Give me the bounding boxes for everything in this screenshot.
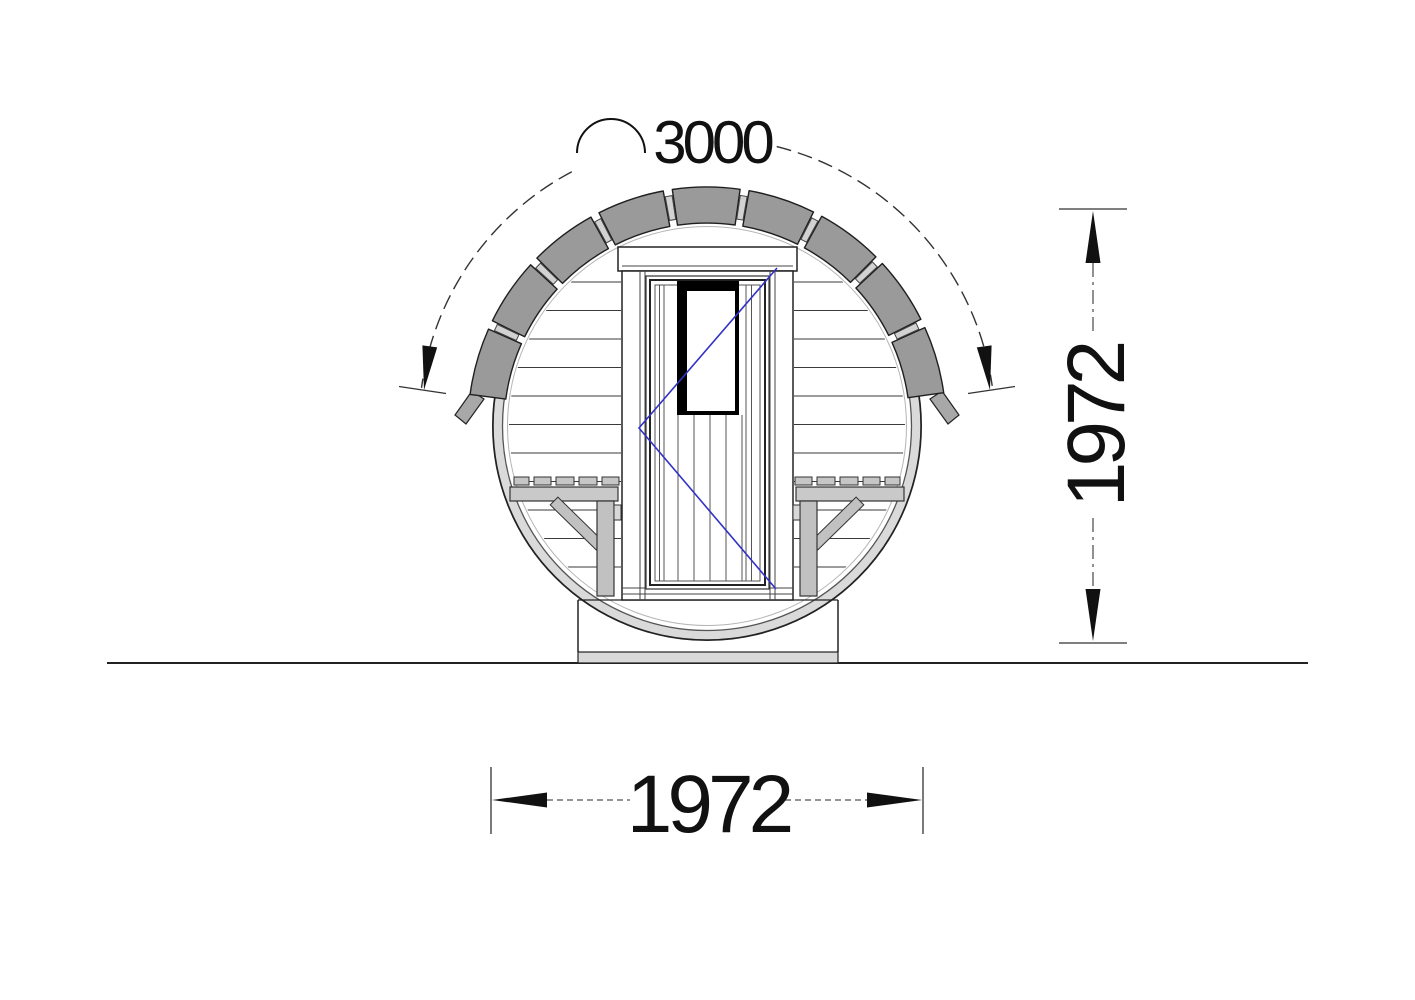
dimension-width: 1972 bbox=[491, 759, 923, 850]
arrow-left bbox=[492, 793, 547, 808]
arc-length-symbol bbox=[577, 119, 645, 153]
roof-drip-edge-right bbox=[930, 391, 959, 424]
dimension-label-roof-arc-length: 3000 bbox=[653, 109, 773, 176]
arrow-left bbox=[422, 345, 437, 390]
dimension-label-width: 1972 bbox=[627, 759, 791, 850]
door-lintel bbox=[618, 247, 797, 271]
bench-leg bbox=[597, 501, 614, 596]
tick-left bbox=[399, 387, 446, 394]
bench-fascia bbox=[510, 487, 618, 501]
door-assembly bbox=[618, 247, 797, 600]
door-window-glass bbox=[687, 291, 735, 411]
arrow-right bbox=[977, 345, 992, 390]
dimension-label-height: 1972 bbox=[1051, 343, 1142, 507]
base-strip bbox=[578, 652, 838, 663]
bench-bracket bbox=[614, 505, 621, 520]
arrow-right bbox=[867, 793, 922, 808]
bench-leg bbox=[800, 501, 817, 596]
technical-drawing-canvas: 3000 1972 1972 bbox=[0, 0, 1415, 1000]
bench-fascia bbox=[796, 487, 904, 501]
shingle-segment bbox=[672, 187, 740, 225]
dimension-height: 1972 bbox=[1051, 209, 1142, 643]
arrow-up bbox=[1086, 211, 1101, 263]
arrow-down bbox=[1086, 589, 1101, 641]
bench-bracket bbox=[793, 505, 800, 520]
tick-right bbox=[968, 387, 1015, 394]
